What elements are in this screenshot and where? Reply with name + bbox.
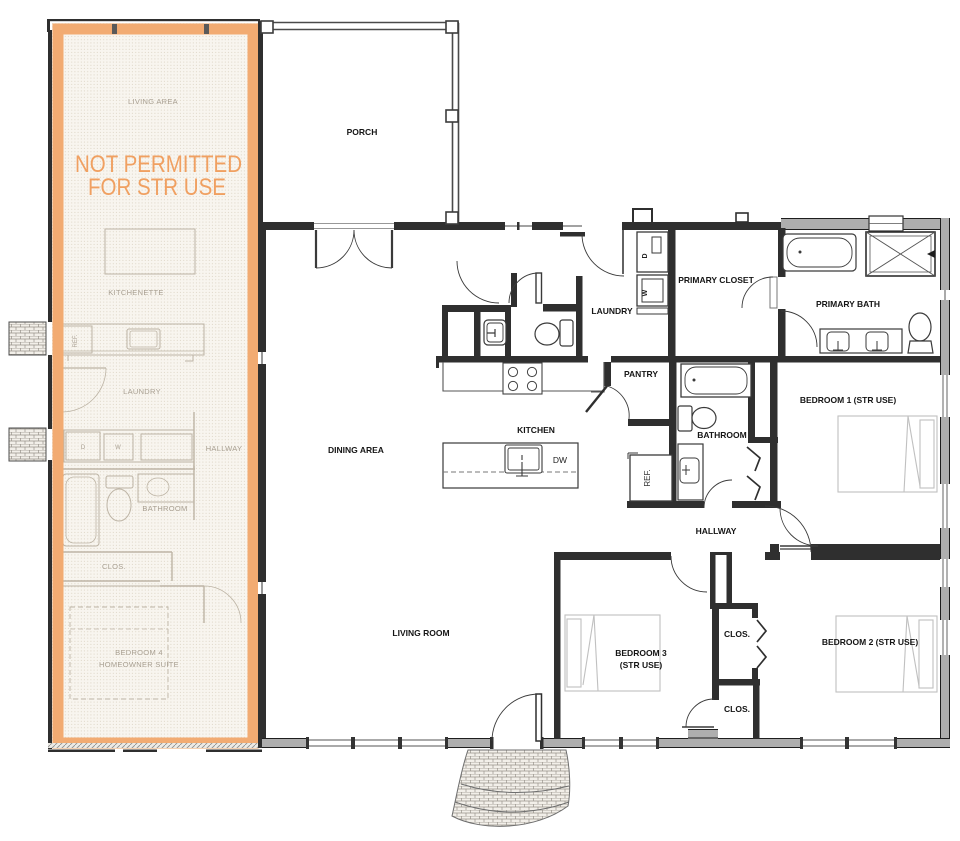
svg-text:HOMEOWNER SUITE: HOMEOWNER SUITE: [99, 660, 179, 669]
svg-text:W: W: [642, 289, 649, 296]
svg-text:BEDROOM 1 (STR USE): BEDROOM 1 (STR USE): [800, 395, 897, 405]
svg-text:HALLWAY: HALLWAY: [696, 526, 737, 536]
svg-text:BATHROOM: BATHROOM: [142, 504, 187, 513]
svg-text:HALLWAY: HALLWAY: [206, 444, 243, 453]
svg-text:REF.: REF.: [73, 334, 79, 347]
svg-text:CLOS.: CLOS.: [102, 562, 126, 571]
svg-text:LAUNDRY: LAUNDRY: [591, 306, 633, 316]
svg-text:KITCHEN: KITCHEN: [517, 425, 555, 435]
svg-text:D: D: [642, 253, 649, 258]
svg-text:CLOS.: CLOS.: [724, 629, 750, 639]
svg-text:LIVING AREA: LIVING AREA: [128, 97, 178, 106]
svg-text:DINING AREA: DINING AREA: [328, 445, 384, 455]
svg-text:KITCHENETTE: KITCHENETTE: [108, 288, 163, 297]
svg-text:CLOS.: CLOS.: [724, 704, 750, 714]
svg-text:PRIMARY CLOSET: PRIMARY CLOSET: [678, 275, 754, 285]
svg-text:(STR USE): (STR USE): [620, 660, 663, 670]
svg-text:LIVING ROOM: LIVING ROOM: [392, 628, 449, 638]
svg-text:PORCH: PORCH: [347, 127, 378, 137]
svg-text:PANTRY: PANTRY: [624, 369, 658, 379]
svg-text:PRIMARY BATH: PRIMARY BATH: [816, 299, 880, 309]
svg-text:FOR STR USE: FOR STR USE: [88, 174, 226, 201]
svg-text:REF.: REF.: [643, 469, 652, 486]
svg-text:BEDROOM 3: BEDROOM 3: [615, 648, 667, 658]
svg-text:D: D: [81, 445, 86, 451]
svg-text:DW: DW: [553, 455, 567, 465]
svg-text:BATHROOM: BATHROOM: [697, 430, 746, 440]
svg-text:BEDROOM 4: BEDROOM 4: [115, 648, 163, 657]
svg-text:LAUNDRY: LAUNDRY: [123, 387, 161, 396]
svg-text:BEDROOM 2 (STR USE): BEDROOM 2 (STR USE): [822, 637, 919, 647]
svg-text:W: W: [115, 445, 121, 451]
